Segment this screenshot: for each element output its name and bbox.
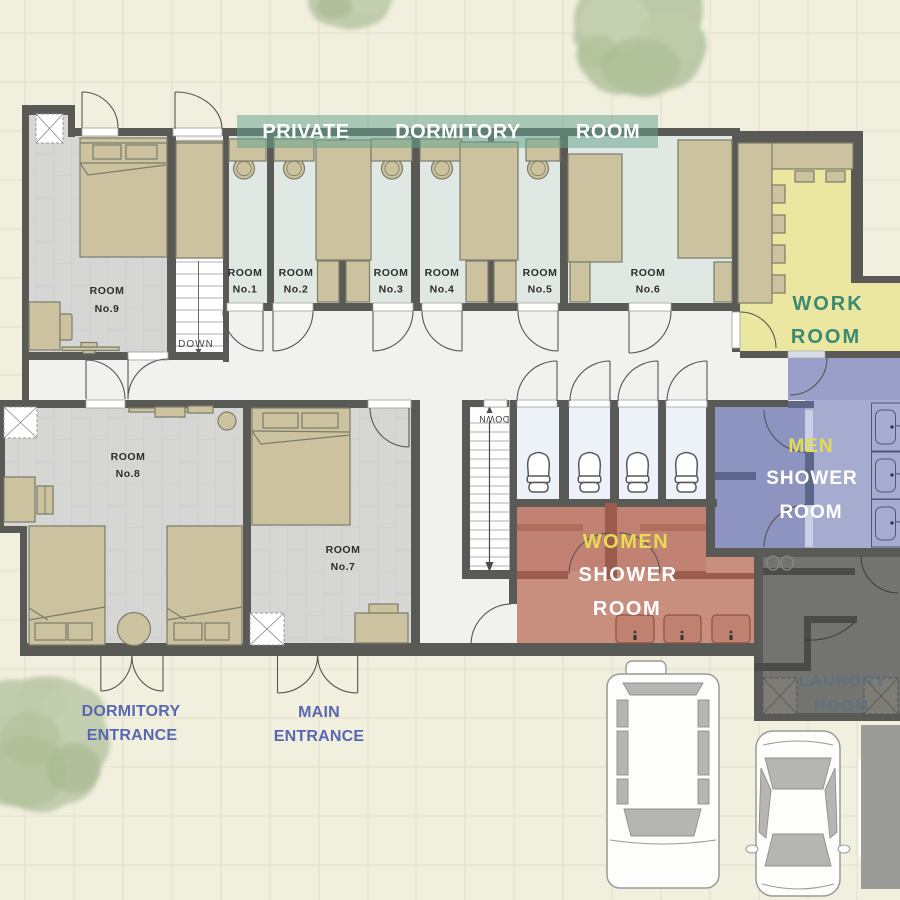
svg-text:PRIVATE: PRIVATE: [262, 121, 349, 143]
svg-text:ROOM: ROOM: [593, 598, 661, 620]
svg-text:No.3: No.3: [379, 284, 404, 296]
svg-text:No.9: No.9: [95, 303, 120, 315]
svg-text:ROOM: ROOM: [523, 267, 558, 279]
svg-text:No.8: No.8: [116, 468, 141, 480]
svg-text:ENTRANCE: ENTRANCE: [87, 727, 178, 744]
svg-text:WORK: WORK: [792, 293, 863, 315]
svg-text:ROOM: ROOM: [576, 121, 640, 143]
svg-text:ROOM: ROOM: [814, 698, 870, 715]
svg-text:DOWN: DOWN: [479, 414, 510, 424]
svg-text:ROOM: ROOM: [228, 267, 263, 279]
svg-text:No.1: No.1: [233, 284, 258, 296]
svg-text:ROOM: ROOM: [791, 326, 861, 348]
svg-text:DORMITORY: DORMITORY: [395, 121, 521, 143]
svg-text:No.6: No.6: [636, 284, 661, 296]
svg-text:ROOM: ROOM: [279, 267, 314, 279]
svg-text:ROOM: ROOM: [374, 267, 409, 279]
svg-text:ROOM: ROOM: [425, 267, 460, 279]
svg-text:WOMEN: WOMEN: [583, 531, 669, 553]
svg-text:DOWN: DOWN: [178, 339, 214, 350]
svg-text:No.4: No.4: [430, 284, 455, 296]
svg-text:No.7: No.7: [331, 561, 356, 573]
svg-text:SHOWER: SHOWER: [579, 564, 678, 586]
svg-text:ROOM: ROOM: [779, 502, 842, 523]
svg-text:LAUNDRY: LAUNDRY: [799, 673, 887, 690]
svg-text:ROOM: ROOM: [90, 285, 125, 297]
svg-text:MEN: MEN: [788, 436, 833, 457]
svg-text:ROOM: ROOM: [631, 267, 666, 279]
svg-text:ROOM: ROOM: [111, 451, 146, 463]
svg-text:No.5: No.5: [528, 284, 553, 296]
svg-text:MAIN: MAIN: [298, 704, 340, 721]
svg-text:ROOM: ROOM: [326, 544, 361, 556]
svg-text:No.2: No.2: [284, 284, 309, 296]
svg-text:SHOWER: SHOWER: [766, 468, 858, 489]
svg-text:DORMITORY: DORMITORY: [82, 703, 181, 720]
svg-text:ENTRANCE: ENTRANCE: [274, 728, 365, 745]
